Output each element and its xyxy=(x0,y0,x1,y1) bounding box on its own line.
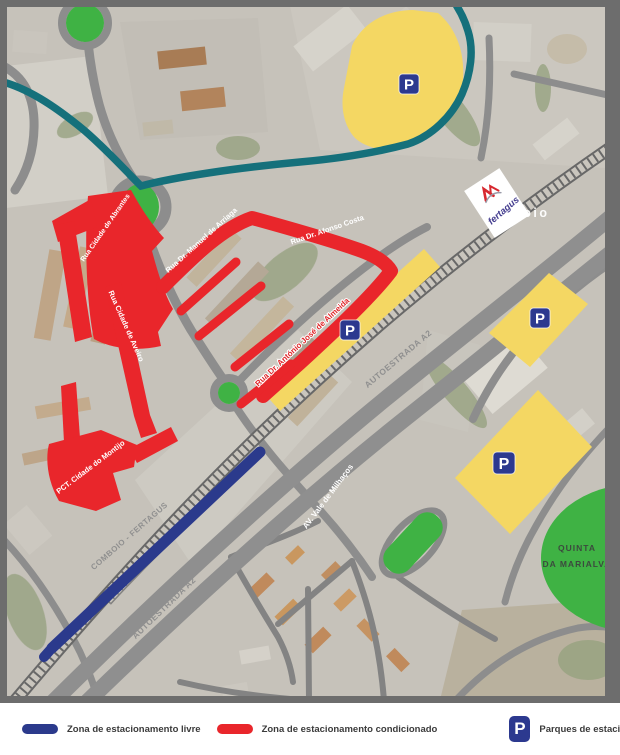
legend-label-restricted: Zona de estacionamento condicionado xyxy=(262,724,438,735)
legend: Zona de estacionamento livre Zona de est… xyxy=(0,703,620,755)
parking-marker-letter: P xyxy=(345,323,355,340)
legend-item-restricted-zone: Zona de estacionamento condicionado xyxy=(217,724,438,735)
roundabout-green-station xyxy=(218,382,240,404)
legend-item-fertagus-parking: P Parques de estacionamento da Fertagus xyxy=(509,716,620,742)
parking-sign-icon: P xyxy=(509,716,530,742)
parking-marker-east-lower: P xyxy=(493,452,515,474)
parking-marker-letter: P xyxy=(499,456,510,473)
legend-label-fertagus-parking: Parques de estacionamento da Fertagus xyxy=(539,724,620,735)
parking-marker-letter: P xyxy=(404,77,414,94)
roundabout-green-top xyxy=(66,4,104,42)
restricted-zone-swatch xyxy=(217,724,253,734)
free-zone-swatch xyxy=(22,724,58,734)
area-label-quinta-line1: QUINTA xyxy=(558,543,596,553)
legend-label-free: Zona de estacionamento livre xyxy=(67,724,201,735)
parking-marker-north: P xyxy=(399,74,419,94)
parking-map: P P P P rroio fertagus Rua Cidade de Abr… xyxy=(0,0,620,703)
legend-item-free-zone: Zona de estacionamento livre xyxy=(22,724,201,735)
parking-marker-station: P xyxy=(340,320,360,340)
parking-marker-east-upper: P xyxy=(530,308,550,328)
parking-marker-letter: P xyxy=(535,311,545,328)
area-label-quinta-line2: DA MARIALVA xyxy=(543,559,612,569)
